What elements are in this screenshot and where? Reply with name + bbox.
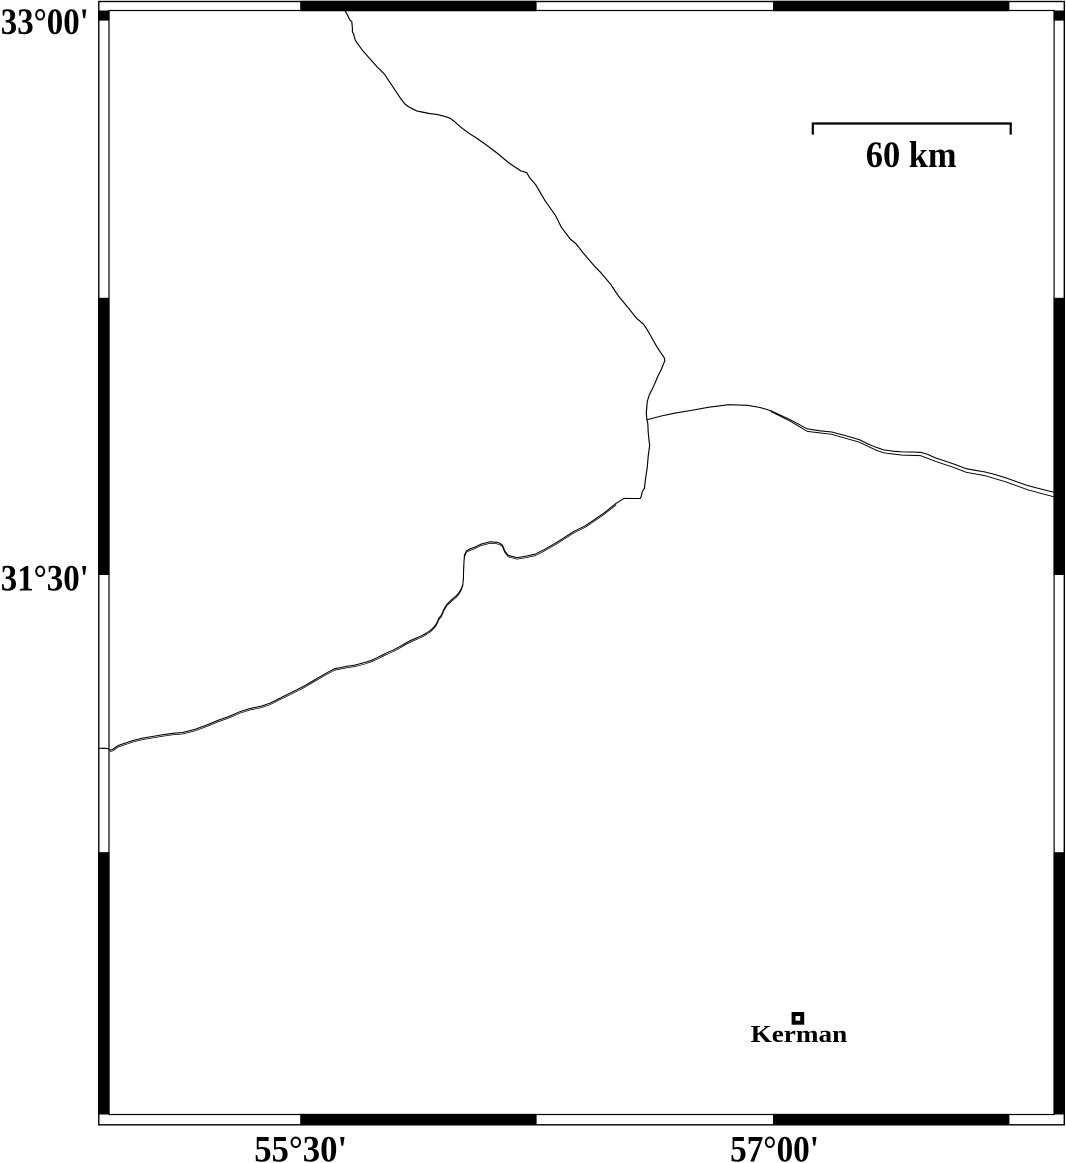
svg-text:57°00': 57°00'	[730, 1129, 819, 1163]
svg-text:60 km: 60 km	[866, 134, 957, 175]
svg-text:33°00': 33°00'	[1, 1, 89, 42]
svg-text:55°30': 55°30'	[254, 1129, 347, 1163]
svg-text:31°30': 31°30'	[1, 557, 89, 598]
svg-text:Kerman: Kerman	[751, 1022, 848, 1048]
